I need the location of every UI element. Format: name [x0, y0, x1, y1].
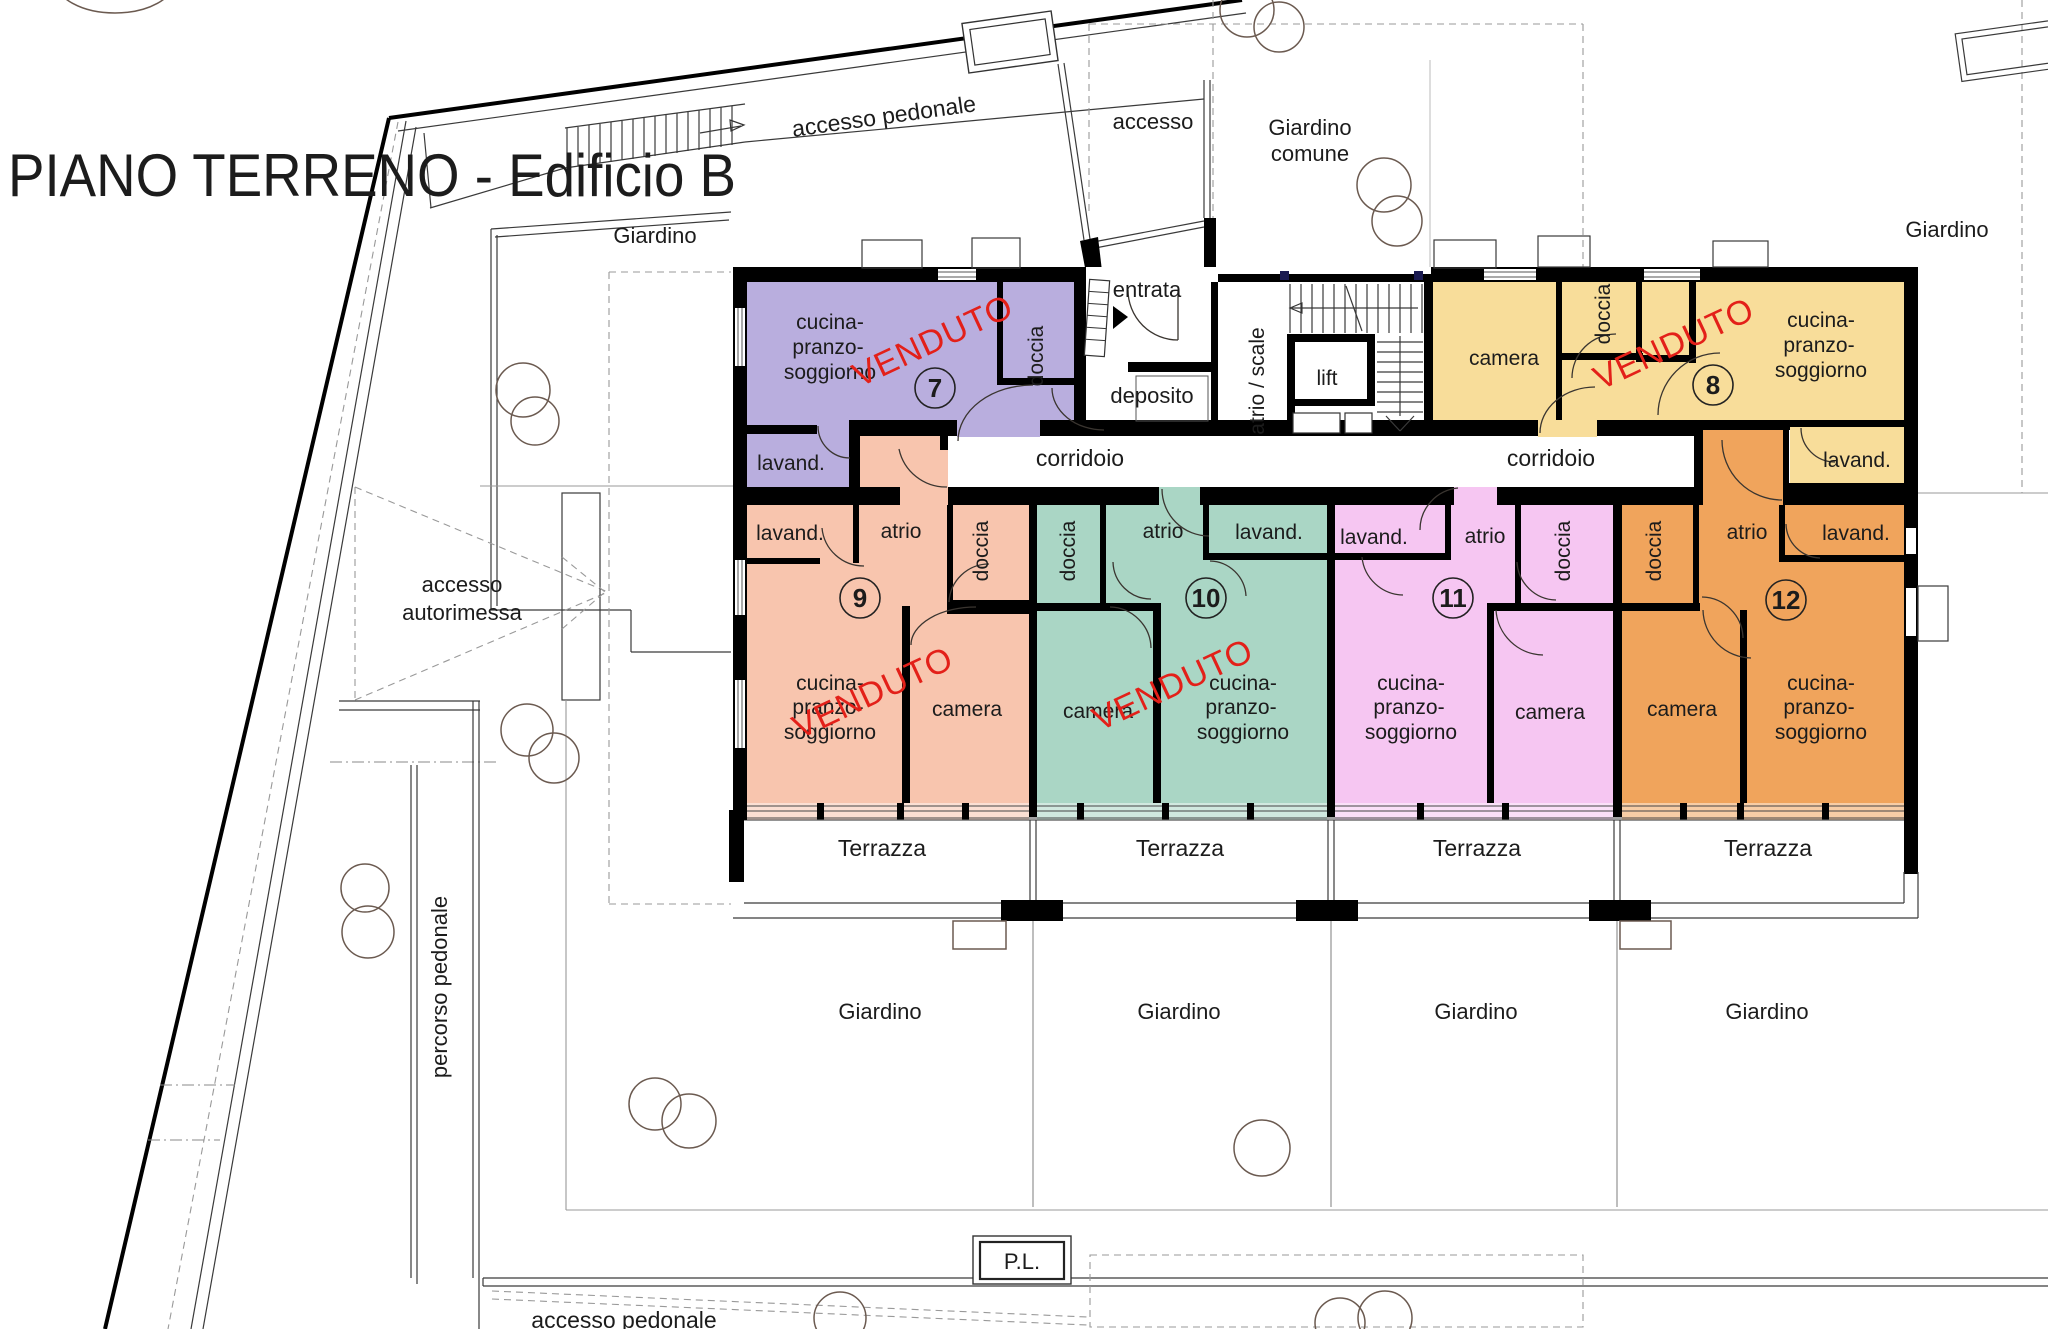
svg-text:doccia: doccia: [1592, 283, 1615, 344]
svg-text:deposito: deposito: [1110, 383, 1193, 408]
svg-text:atrio / scale: atrio / scale: [1246, 327, 1269, 434]
svg-text:lavand.: lavand.: [1340, 526, 1408, 549]
svg-text:soggiorno: soggiorno: [1197, 721, 1289, 744]
svg-text:pranzo-: pranzo-: [1783, 696, 1854, 719]
svg-text:doccia: doccia: [1552, 520, 1575, 581]
svg-text:pranzo-: pranzo-: [1205, 696, 1276, 719]
svg-text:soggiorno: soggiorno: [1775, 359, 1867, 382]
svg-text:Giardino: Giardino: [1725, 999, 1808, 1024]
svg-text:Giardino: Giardino: [1434, 999, 1517, 1024]
svg-text:accesso: accesso: [422, 572, 503, 597]
svg-text:doccia: doccia: [1643, 520, 1666, 581]
svg-text:lavand.: lavand.: [757, 452, 825, 475]
svg-text:camera: camera: [1515, 701, 1585, 724]
svg-text:doccia: doccia: [1057, 520, 1080, 581]
svg-text:Giardino: Giardino: [1137, 999, 1220, 1024]
svg-text:atrio: atrio: [1143, 520, 1184, 543]
svg-text:camera: camera: [1647, 698, 1717, 721]
svg-text:accesso: accesso: [1113, 109, 1194, 134]
svg-text:lavand.: lavand.: [1235, 521, 1303, 544]
svg-text:corridoio: corridoio: [1036, 445, 1124, 471]
svg-text:lavand.: lavand.: [1822, 522, 1890, 545]
svg-text:cucina-: cucina-: [1787, 672, 1855, 695]
svg-text:11: 11: [1439, 583, 1467, 613]
svg-text:soggiorno: soggiorno: [1365, 721, 1457, 744]
svg-text:Terrazza: Terrazza: [1433, 835, 1521, 861]
svg-text:10: 10: [1192, 583, 1221, 613]
svg-text:PIANO TERRENO - Edificio B: PIANO TERRENO - Edificio B: [8, 142, 736, 209]
svg-text:doccia: doccia: [970, 520, 993, 581]
svg-text:soggiorno: soggiorno: [1775, 721, 1867, 744]
svg-text:Terrazza: Terrazza: [1724, 835, 1812, 861]
svg-text:entrata: entrata: [1113, 277, 1182, 302]
svg-text:Giardino: Giardino: [1268, 115, 1351, 140]
svg-text:P.L.: P.L.: [1004, 1249, 1040, 1274]
svg-text:lift: lift: [1317, 367, 1338, 390]
svg-text:camera: camera: [1469, 347, 1539, 370]
svg-text:Giardino: Giardino: [1905, 217, 1988, 242]
svg-text:Terrazza: Terrazza: [838, 835, 926, 861]
svg-text:pranzo-: pranzo-: [1373, 696, 1444, 719]
svg-text:cucina-: cucina-: [1787, 309, 1855, 332]
svg-text:pranzo-: pranzo-: [1783, 334, 1854, 357]
svg-text:accesso pedonale: accesso pedonale: [531, 1307, 716, 1329]
svg-text:doccia: doccia: [1025, 325, 1048, 386]
svg-text:lavand.: lavand.: [756, 522, 824, 545]
svg-text:7: 7: [928, 373, 942, 403]
svg-text:corridoio: corridoio: [1507, 445, 1595, 471]
svg-text:lavand.: lavand.: [1823, 449, 1891, 472]
svg-text:atrio: atrio: [1727, 521, 1768, 544]
svg-text:9: 9: [853, 583, 867, 613]
svg-text:atrio: atrio: [881, 520, 922, 543]
svg-text:autorimessa: autorimessa: [402, 600, 523, 625]
svg-text:cucina-: cucina-: [796, 311, 864, 334]
svg-text:pranzo-: pranzo-: [792, 336, 863, 359]
svg-text:cucina-: cucina-: [1377, 672, 1445, 695]
svg-text:12: 12: [1772, 585, 1801, 615]
svg-text:Giardino: Giardino: [838, 999, 921, 1024]
svg-text:Terrazza: Terrazza: [1136, 835, 1224, 861]
svg-text:Giardino: Giardino: [613, 223, 696, 248]
svg-text:8: 8: [1706, 370, 1720, 400]
svg-text:atrio: atrio: [1465, 525, 1506, 548]
svg-text:comune: comune: [1271, 141, 1349, 166]
svg-text:percorso pedonale: percorso pedonale: [427, 896, 452, 1078]
svg-text:camera: camera: [932, 698, 1002, 721]
